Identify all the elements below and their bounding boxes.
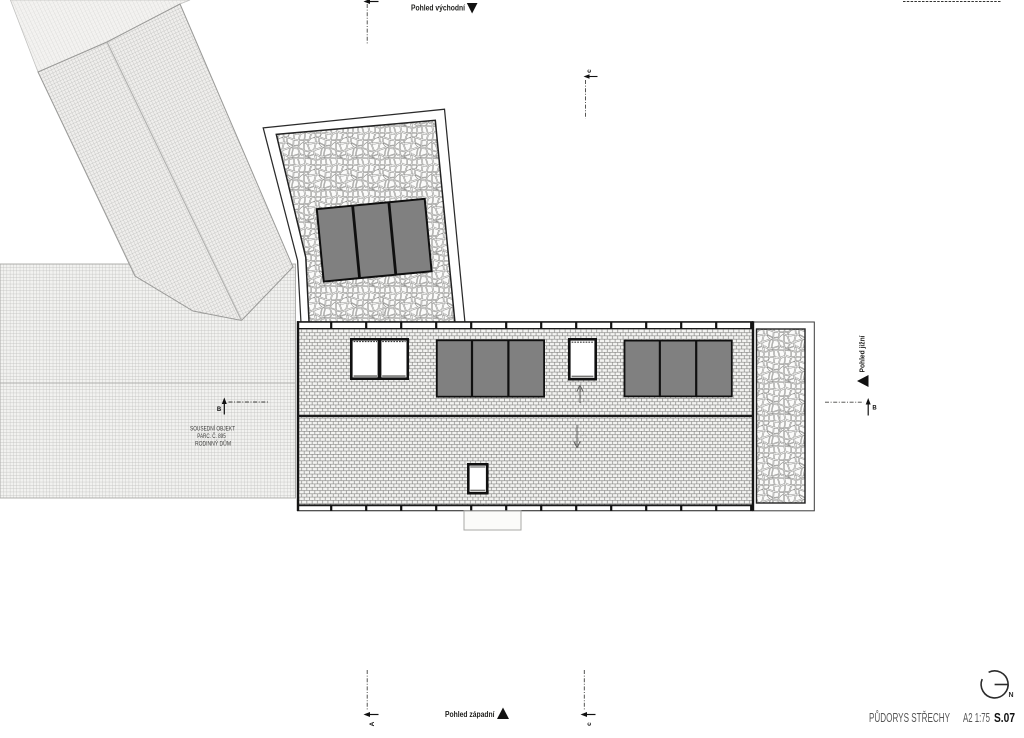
svg-text:RODINNÝ DŮM: RODINNÝ DŮM — [195, 441, 231, 448]
svg-text:PŮDORYS STŘECHY: PŮDORYS STŘECHY — [869, 710, 950, 725]
svg-text:B: B — [217, 407, 222, 413]
svg-text:1,5: 1,5 — [581, 432, 587, 437]
svg-text:S.07: S.07 — [994, 711, 1015, 725]
svg-text:B: B — [872, 406, 877, 412]
svg-text:N: N — [1008, 692, 1013, 699]
svg-text:c: c — [586, 722, 593, 726]
svg-text:PARC. Č. 895: PARC. Č. 895 — [197, 433, 226, 440]
svg-text:c: c — [586, 69, 593, 73]
svg-text:A2 1:75: A2 1:75 — [963, 711, 990, 725]
svg-text:SOUSEDNÍ OBJEKT: SOUSEDNÍ OBJEKT — [190, 426, 235, 433]
svg-text:Pohled jižní: Pohled jižní — [858, 335, 867, 373]
svg-text:1,5: 1,5 — [583, 397, 589, 402]
svg-text:A: A — [369, 721, 376, 726]
svg-text:Pohled západní: Pohled západní — [445, 710, 495, 719]
svg-text:Pohled východní: Pohled východní — [411, 3, 466, 12]
